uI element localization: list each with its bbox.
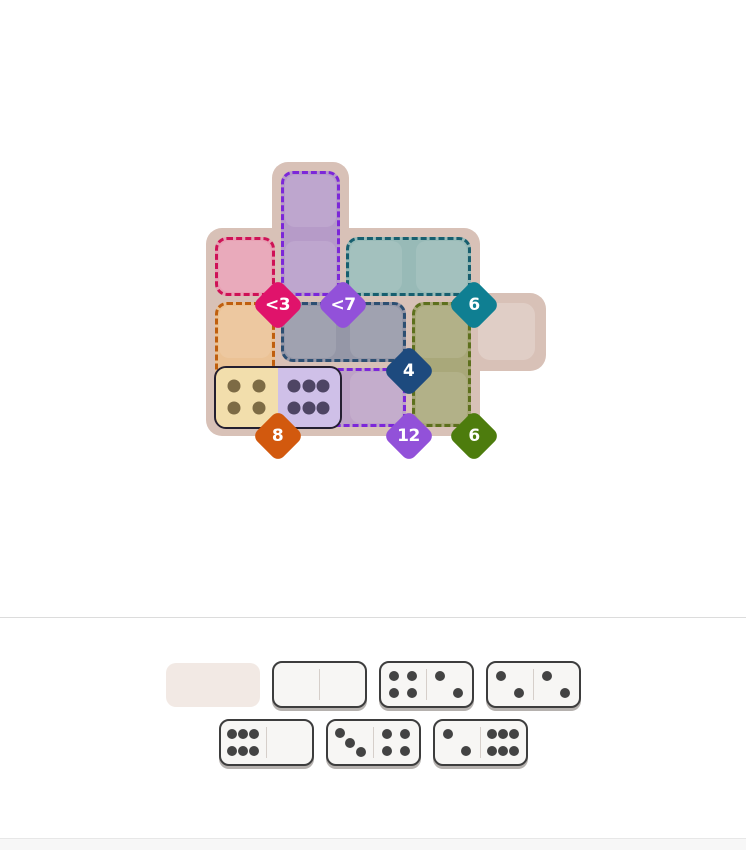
pip — [498, 729, 508, 739]
region-teal[interactable] — [346, 237, 471, 297]
domino-divider — [533, 669, 534, 700]
pip — [443, 729, 453, 739]
badge-value: <7 — [330, 295, 355, 315]
pip — [382, 746, 392, 756]
pip — [453, 688, 463, 698]
domino-half — [533, 663, 579, 706]
tray-domino-4-2[interactable] — [379, 661, 474, 708]
domino-half — [319, 663, 365, 706]
domino-divider — [266, 727, 267, 758]
domino-tray-row-2 — [0, 719, 746, 766]
badge-value: 4 — [403, 361, 414, 381]
pip — [487, 746, 497, 756]
pip — [227, 729, 237, 739]
domino-half — [435, 721, 481, 764]
pip — [389, 671, 399, 681]
badge-value: 8 — [272, 426, 283, 446]
pip — [249, 746, 259, 756]
tray-domino-2-6[interactable] — [433, 719, 528, 766]
region-violet[interactable] — [281, 171, 341, 296]
domino-divider — [426, 669, 427, 700]
pip — [287, 380, 300, 393]
pip — [227, 746, 237, 756]
tray-domino-2-2[interactable] — [486, 661, 581, 708]
domino-tray-row-1 — [0, 661, 746, 708]
domino-divider — [373, 727, 374, 758]
domino-half — [381, 663, 427, 706]
pips-puzzle-screen: <3<7684612 — [0, 0, 746, 850]
pip — [252, 402, 265, 415]
pip — [317, 402, 330, 415]
badge-value: 12 — [397, 426, 420, 446]
domino-half — [426, 663, 472, 706]
domino-half — [221, 721, 267, 764]
pip — [498, 746, 508, 756]
pip — [400, 729, 410, 739]
tray-divider — [0, 617, 746, 618]
tray-domino-6-0[interactable] — [219, 719, 314, 766]
pip — [496, 671, 506, 681]
pip — [509, 729, 519, 739]
pip — [461, 746, 471, 756]
pip — [228, 380, 241, 393]
pip — [252, 380, 265, 393]
pip — [389, 688, 399, 698]
tray-domino-3-4[interactable] — [326, 719, 421, 766]
tray-domino-0-0[interactable] — [272, 661, 367, 708]
badge-value: 6 — [468, 426, 479, 446]
pip — [407, 671, 417, 681]
domino-half — [274, 663, 320, 706]
pip — [487, 729, 497, 739]
badge-value: <3 — [265, 295, 290, 315]
pip — [400, 746, 410, 756]
pip — [542, 671, 552, 681]
pip — [302, 402, 315, 415]
domino-half — [488, 663, 534, 706]
pip — [238, 746, 248, 756]
pip — [302, 380, 315, 393]
domino-half — [373, 721, 419, 764]
pip — [560, 688, 570, 698]
region-rose[interactable] — [215, 237, 275, 297]
domino-half — [328, 721, 374, 764]
domino-half — [480, 721, 526, 764]
pip — [335, 728, 345, 738]
tray-empty-slot[interactable] — [166, 663, 260, 707]
domino-divider — [480, 727, 481, 758]
pip — [238, 729, 248, 739]
domino-divider — [319, 669, 320, 700]
pip — [435, 671, 445, 681]
pip — [509, 746, 519, 756]
pip — [249, 729, 259, 739]
pip — [407, 688, 417, 698]
pip — [514, 688, 524, 698]
bottom-bar — [0, 838, 746, 850]
pip — [345, 738, 355, 748]
pip — [382, 729, 392, 739]
pip — [317, 380, 330, 393]
pip — [287, 402, 300, 415]
pip — [228, 402, 241, 415]
badge-value: 6 — [468, 295, 479, 315]
pip — [356, 747, 366, 757]
domino-half — [266, 721, 312, 764]
